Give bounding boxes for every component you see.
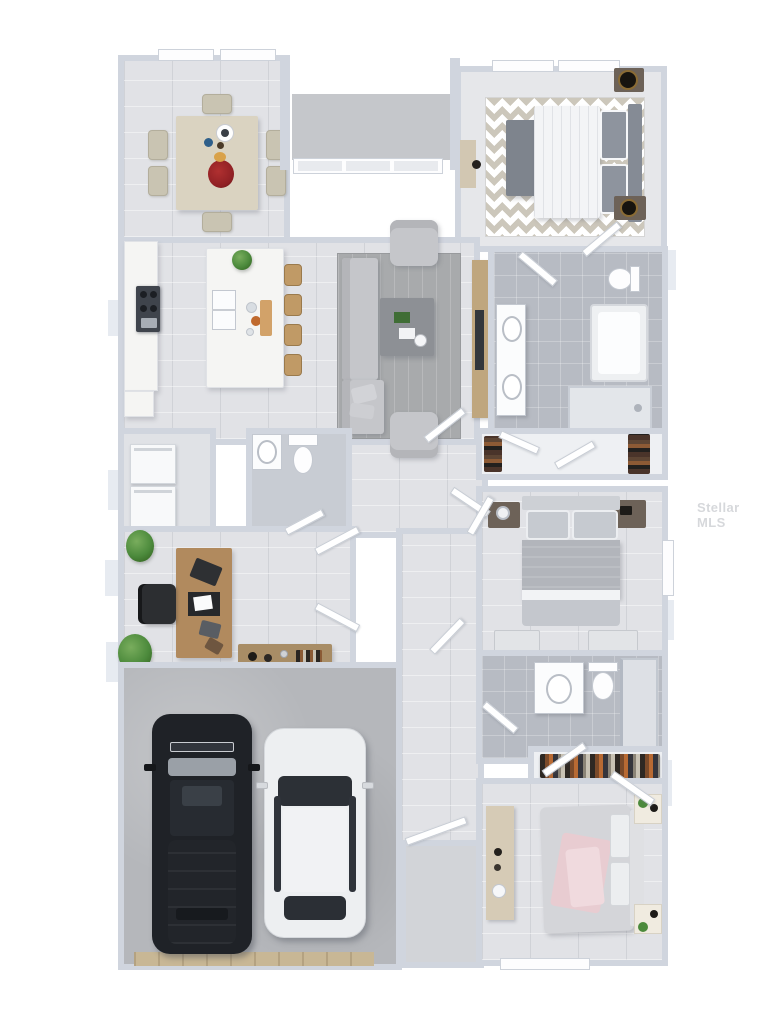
coffee-table xyxy=(380,298,434,356)
bedroom3-window xyxy=(500,958,590,970)
bed2-runner xyxy=(522,590,620,600)
paper-sheet xyxy=(193,595,213,611)
toilet-bowl xyxy=(608,268,632,290)
oven-front xyxy=(141,318,157,328)
toilet-bowl xyxy=(592,672,614,700)
nightstand-decor xyxy=(620,506,632,515)
bed2-headboard xyxy=(522,496,620,510)
master-window xyxy=(492,60,554,72)
sedan-rear-glass xyxy=(284,896,346,920)
toilet-tank xyxy=(288,434,318,446)
brown-dish xyxy=(217,142,224,149)
suv-grille xyxy=(170,742,234,752)
toilet-tank xyxy=(588,662,618,672)
bed2-pillow xyxy=(572,510,618,540)
blue-cup xyxy=(204,138,213,147)
suv-mirror xyxy=(144,764,156,771)
bed2-pillow xyxy=(526,510,570,540)
bar-stool xyxy=(284,354,302,376)
porch-side-wall xyxy=(280,58,290,170)
sedan-windshield xyxy=(278,776,352,806)
coffee-table-magazine xyxy=(399,328,415,339)
master-window xyxy=(558,60,620,72)
sink-divider xyxy=(212,309,236,311)
shoe-shelf xyxy=(484,436,502,472)
vanity-sink xyxy=(502,316,522,342)
dresser-decor xyxy=(494,848,502,856)
table-lamp xyxy=(618,70,638,90)
bathtub-basin xyxy=(598,312,640,374)
porch-window-pane xyxy=(298,161,342,171)
bed3-pillow xyxy=(610,862,630,906)
table-lamp xyxy=(620,199,638,217)
bath2-sink xyxy=(546,674,572,704)
bed3-pillow xyxy=(610,814,630,858)
small-bowl xyxy=(246,328,254,336)
dining-chair xyxy=(202,94,232,114)
bed3-pink-throw-fold xyxy=(565,846,605,907)
washer-control xyxy=(134,448,172,451)
sectional-sofa xyxy=(342,258,378,380)
bath2-shower xyxy=(620,658,658,750)
suv-mirror xyxy=(248,764,260,771)
office-chair xyxy=(142,584,176,624)
bedroom2-window xyxy=(662,540,674,596)
dresser-decor xyxy=(494,864,501,871)
cutting-board xyxy=(260,300,272,336)
console-decor xyxy=(248,652,257,661)
dryer-control xyxy=(134,490,172,493)
bar-stool xyxy=(284,324,302,346)
powder-sink xyxy=(257,440,277,464)
dining-chair xyxy=(202,212,232,232)
suv-sunroof xyxy=(182,786,222,806)
nightstand-plant xyxy=(638,922,648,932)
shower-drain xyxy=(634,404,642,412)
bar-stool xyxy=(284,264,302,286)
vanity-sink xyxy=(502,374,522,400)
dining-chair xyxy=(148,166,168,196)
dining-chair xyxy=(266,166,286,196)
dining-chair xyxy=(148,130,168,160)
burner xyxy=(140,291,147,298)
console-decor xyxy=(280,650,288,658)
sedan-mirror xyxy=(362,782,374,789)
burner xyxy=(150,291,157,298)
coffee-table-tray xyxy=(414,334,427,347)
burner xyxy=(140,305,147,312)
suv-rear-glass xyxy=(176,908,228,920)
porch-window-pane xyxy=(394,161,438,171)
master-bed xyxy=(534,106,600,218)
toilet-tank xyxy=(630,266,640,292)
dining-window xyxy=(158,49,214,61)
nightstand-lamp xyxy=(496,506,510,520)
coffee-table-book xyxy=(394,312,410,323)
vanity-stool xyxy=(472,160,481,169)
floor-plan-render: Stellar MLS xyxy=(0,0,768,1024)
foot-bench xyxy=(506,120,536,196)
bed2-duvet-foot xyxy=(522,600,620,626)
dinner-plate xyxy=(246,302,257,313)
shoe-shelf xyxy=(628,434,650,474)
burner xyxy=(150,305,157,312)
bar-stool xyxy=(284,294,302,316)
flower-accent xyxy=(214,152,226,162)
red-flower-centerpiece xyxy=(208,160,234,188)
sedan-side-glass xyxy=(274,796,281,892)
suv-body-rear xyxy=(168,840,236,944)
tv xyxy=(475,310,484,370)
armchair xyxy=(390,220,438,266)
nightstand-vase xyxy=(650,910,658,918)
porch-window-pane xyxy=(346,161,390,171)
island-houseplant xyxy=(232,250,252,270)
watermark: Stellar MLS xyxy=(697,500,768,530)
dresser xyxy=(486,806,514,920)
console-decor xyxy=(264,654,272,662)
sedan-mirror xyxy=(256,782,268,789)
kitchen-counter-return xyxy=(124,391,154,417)
office-plant xyxy=(126,530,154,562)
exterior-pilaster xyxy=(105,560,119,596)
porch-slab xyxy=(292,94,450,160)
toilet-bowl xyxy=(293,446,313,474)
sedan-side-glass xyxy=(349,796,356,892)
bed-pillow xyxy=(600,110,628,160)
suv-windshield xyxy=(168,758,236,776)
entry-alcove xyxy=(400,840,482,968)
dresser-lamp xyxy=(492,884,506,898)
bowl-contents xyxy=(221,129,229,137)
sedan-roof xyxy=(283,808,347,892)
dining-window xyxy=(220,49,276,61)
garage-door xyxy=(134,952,374,966)
